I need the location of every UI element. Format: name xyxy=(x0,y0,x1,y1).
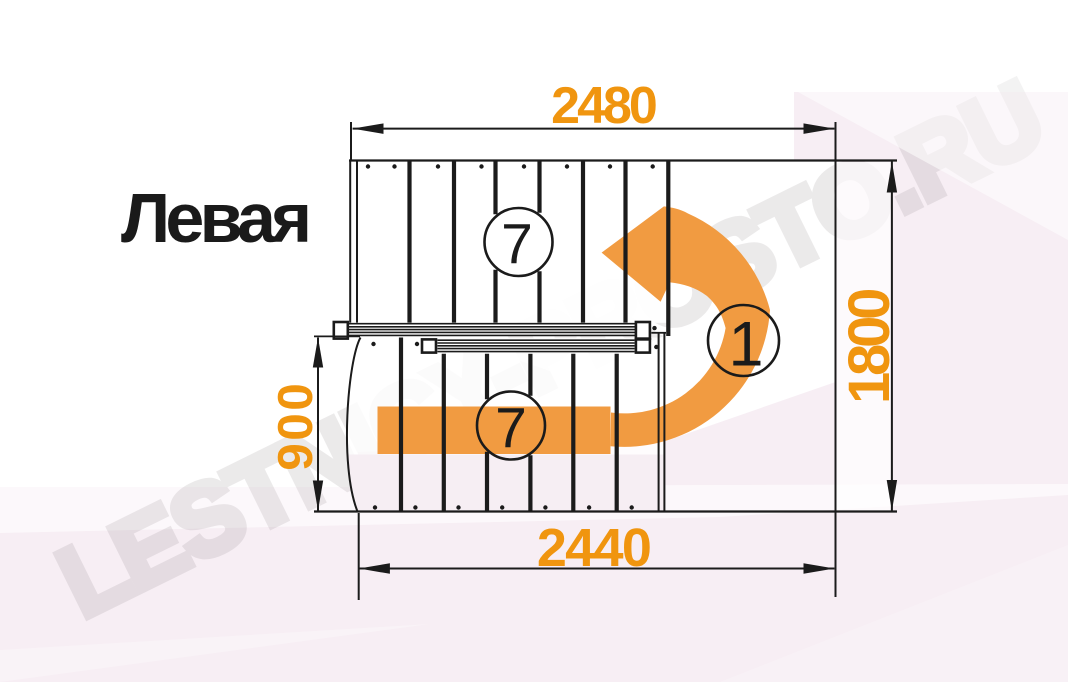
svg-text:2440: 2440 xyxy=(537,518,650,578)
svg-text:1: 1 xyxy=(728,310,763,380)
svg-text:2480: 2480 xyxy=(551,77,656,135)
svg-text:7: 7 xyxy=(501,213,533,277)
svg-text:Левая: Левая xyxy=(121,179,307,257)
svg-text:900: 900 xyxy=(268,381,323,471)
svg-text:7: 7 xyxy=(495,396,527,460)
svg-text:1800: 1800 xyxy=(837,290,902,404)
